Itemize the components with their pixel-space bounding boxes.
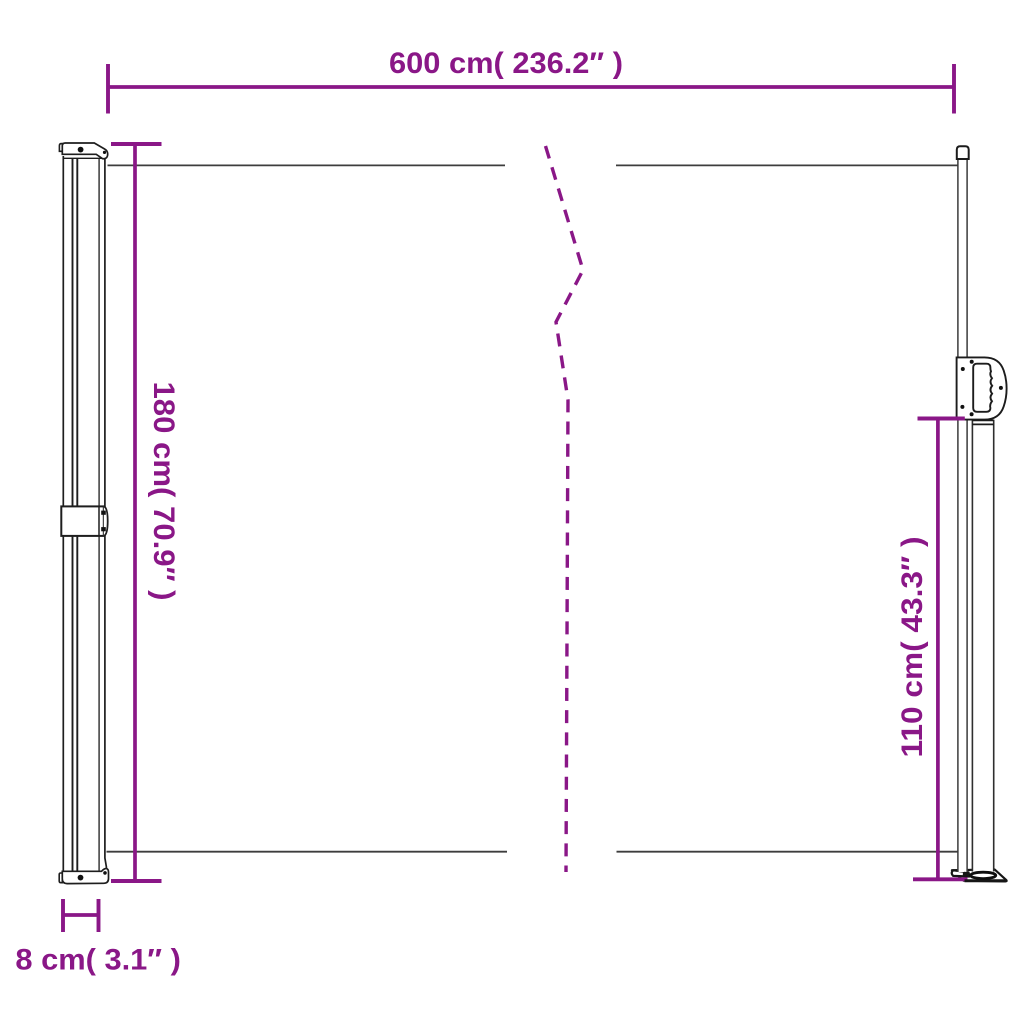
svg-text:180 cm( 70.9″ ): 180 cm( 70.9″ ): [147, 382, 180, 601]
svg-text:8 cm( 3.1″ ): 8 cm( 3.1″ ): [15, 944, 181, 977]
svg-text:110 cm( 43.3″ ): 110 cm( 43.3″ ): [896, 537, 929, 758]
svg-text:600 cm( 236.2″ ): 600 cm( 236.2″ ): [389, 47, 623, 80]
